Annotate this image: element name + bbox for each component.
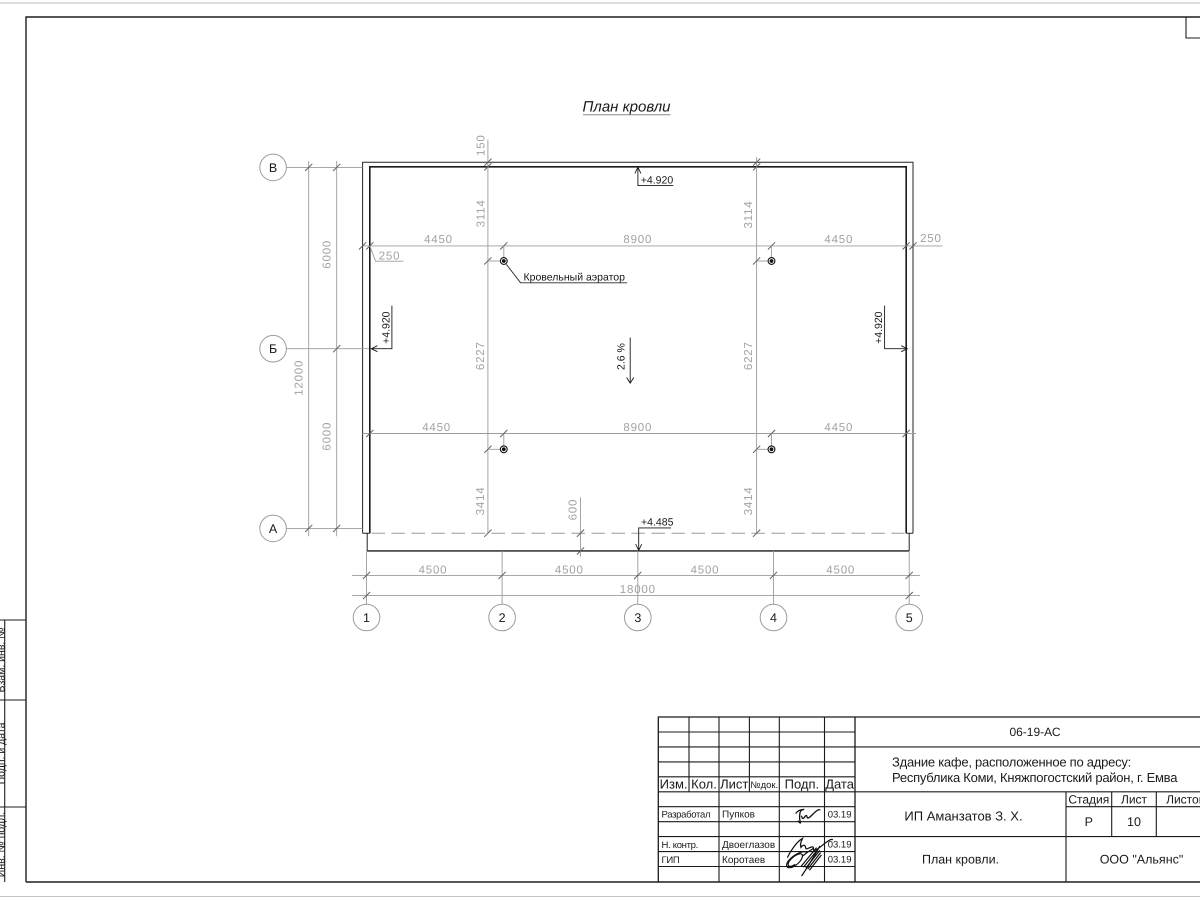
svg-text:03.19: 03.19 xyxy=(828,855,852,866)
svg-text:4500: 4500 xyxy=(691,564,720,576)
svg-text:3414: 3414 xyxy=(743,487,755,516)
svg-text:600: 600 xyxy=(568,499,580,521)
svg-text:Подп. и дата: Подп. и дата xyxy=(0,722,7,784)
svg-text:3: 3 xyxy=(634,611,641,625)
svg-text:03.19: 03.19 xyxy=(828,840,852,851)
svg-text:План кровли.: План кровли. xyxy=(922,853,999,867)
svg-text:Пупков: Пупков xyxy=(722,810,755,821)
svg-text:3414: 3414 xyxy=(475,487,487,516)
svg-text:Коротаев: Коротаев xyxy=(722,855,765,866)
svg-text:План кровли: План кровли xyxy=(583,98,672,115)
svg-text:Взам. инв. №: Взам. инв. № xyxy=(0,627,7,692)
svg-text:ООО "Альянс": ООО "Альянс" xyxy=(1100,853,1184,867)
svg-text:3114: 3114 xyxy=(743,201,755,229)
svg-text:Р: Р xyxy=(1085,815,1093,829)
svg-text:+4.920: +4.920 xyxy=(641,174,674,186)
svg-text:Стадия: Стадия xyxy=(1068,793,1109,807)
svg-text:Здание кафе, расположенное по: Здание кафе, расположенное по адресу: xyxy=(892,755,1131,770)
svg-text:+4.485: +4.485 xyxy=(641,517,674,529)
svg-text:Инв. № подл.: Инв. № подл. xyxy=(0,812,7,877)
svg-text:Подп.: Подп. xyxy=(785,777,820,792)
svg-text:+4.920: +4.920 xyxy=(873,311,885,344)
svg-text:4: 4 xyxy=(770,611,777,625)
svg-text:Листов: Листов xyxy=(1166,793,1200,807)
svg-text:Н. контр.: Н. контр. xyxy=(662,840,699,851)
svg-text:ИП Аманзатов З. Х.: ИП Аманзатов З. Х. xyxy=(904,809,1022,824)
svg-text:12000: 12000 xyxy=(293,360,305,396)
svg-text:1: 1 xyxy=(363,611,370,625)
svg-text:Кровельный аэратор: Кровельный аэратор xyxy=(524,271,626,283)
svg-text:4500: 4500 xyxy=(826,564,855,576)
svg-text:Изм.: Изм. xyxy=(660,777,688,792)
svg-text:№док.: №док. xyxy=(750,780,778,791)
svg-text:ГИП: ГИП xyxy=(662,855,680,866)
svg-text:3114: 3114 xyxy=(475,199,487,227)
svg-text:250: 250 xyxy=(379,250,401,262)
svg-text:Лист: Лист xyxy=(1121,793,1148,807)
svg-text:В: В xyxy=(269,161,277,175)
svg-text:4450: 4450 xyxy=(824,234,853,246)
svg-text:2: 2 xyxy=(499,611,506,625)
svg-text:8900: 8900 xyxy=(623,422,652,434)
svg-text:06-19-АС: 06-19-АС xyxy=(1009,725,1060,739)
svg-text:8900: 8900 xyxy=(623,234,652,246)
svg-text:150: 150 xyxy=(475,134,487,156)
svg-text:18000: 18000 xyxy=(620,584,656,596)
svg-text:4500: 4500 xyxy=(555,564,584,576)
svg-text:4500: 4500 xyxy=(419,564,448,576)
svg-text:Лист: Лист xyxy=(720,777,748,792)
svg-text:2.6 %: 2.6 % xyxy=(616,343,628,370)
svg-text:+4.920: +4.920 xyxy=(381,311,393,344)
svg-text:250: 250 xyxy=(920,233,942,245)
svg-text:03.19: 03.19 xyxy=(828,809,852,820)
svg-text:Б: Б xyxy=(269,342,277,356)
svg-text:10: 10 xyxy=(1127,815,1141,829)
svg-text:Кол.: Кол. xyxy=(691,777,717,792)
svg-text:5: 5 xyxy=(906,611,913,625)
svg-text:Разработал: Разработал xyxy=(662,810,711,821)
svg-text:6227: 6227 xyxy=(743,341,755,370)
svg-text:6227: 6227 xyxy=(475,341,487,370)
svg-text:4450: 4450 xyxy=(422,422,451,434)
svg-text:4450: 4450 xyxy=(424,234,453,246)
svg-text:6000: 6000 xyxy=(321,240,333,269)
svg-text:Республика Коми, Княжпогостски: Республика Коми, Княжпогостский район, г… xyxy=(892,770,1178,785)
svg-text:4450: 4450 xyxy=(824,422,853,434)
svg-text:6000: 6000 xyxy=(321,422,333,451)
svg-text:А: А xyxy=(269,522,278,536)
svg-text:Двоеглазов: Двоеглазов xyxy=(722,840,775,851)
svg-text:Дата: Дата xyxy=(825,777,855,792)
